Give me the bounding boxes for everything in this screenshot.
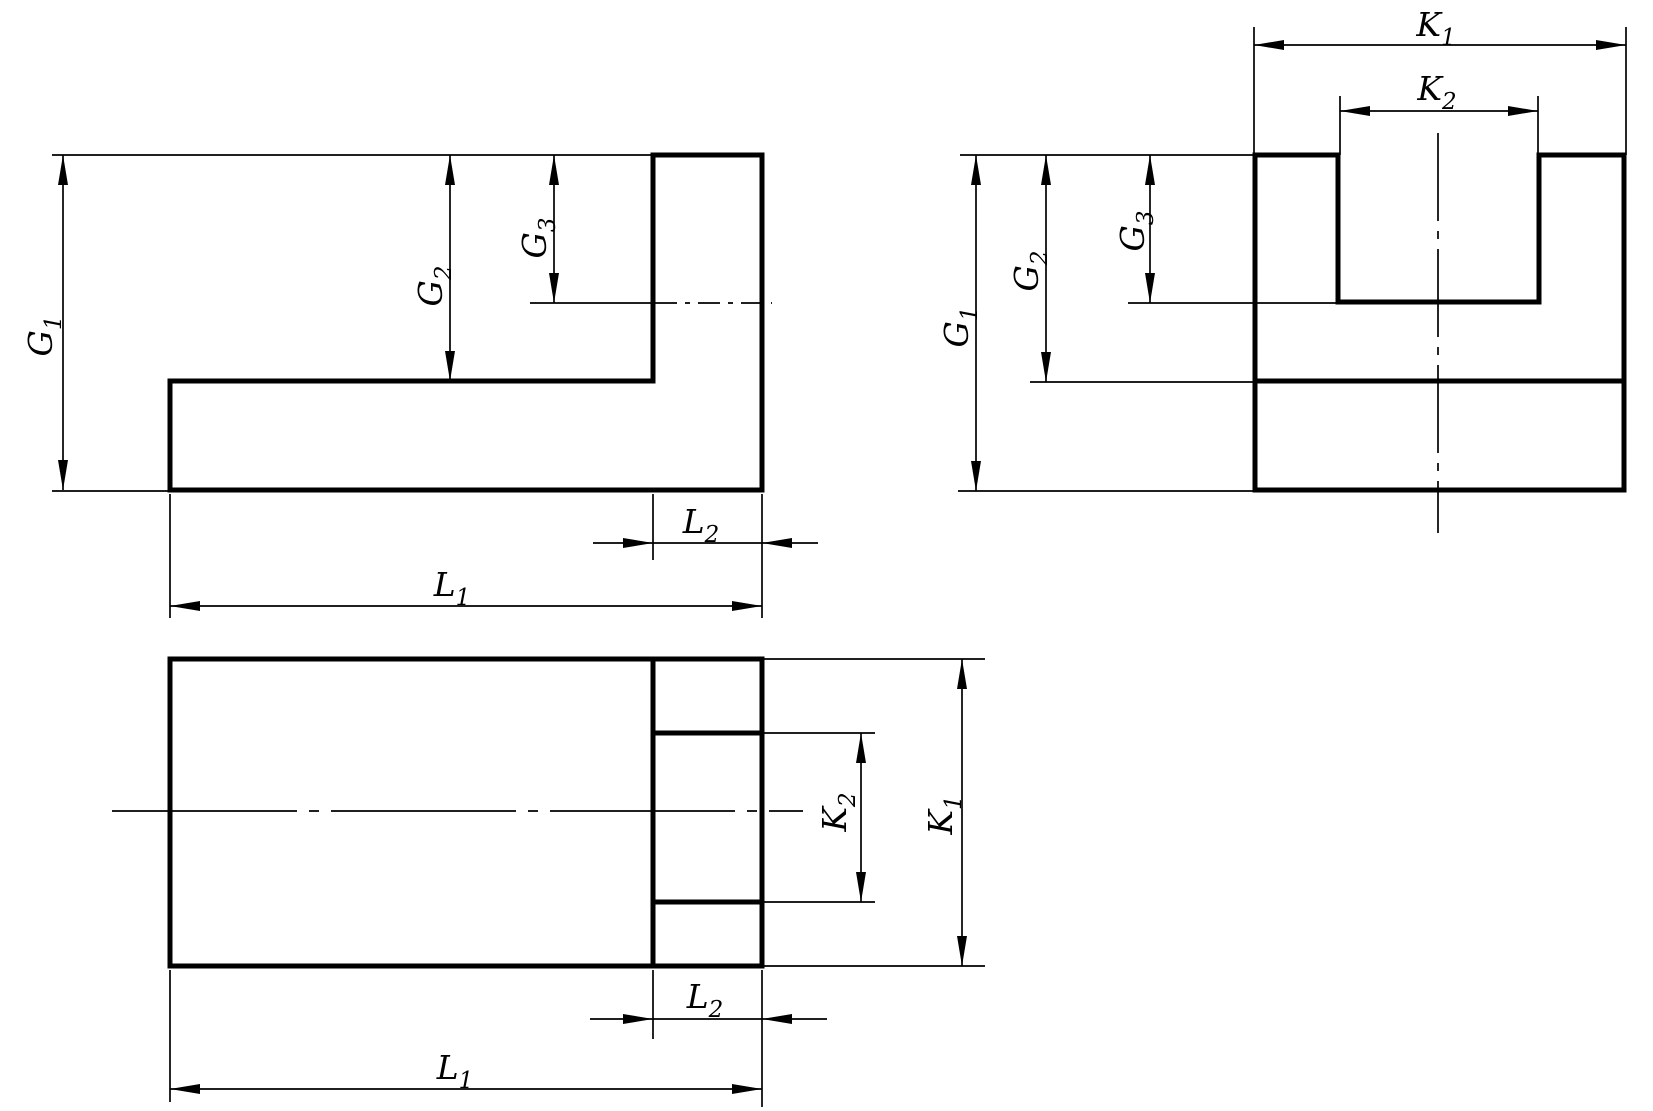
- dim-label-l2: L2: [682, 502, 720, 548]
- front-dim-g3: G3: [1113, 155, 1159, 303]
- arrowhead-down: [445, 351, 455, 381]
- engineering-drawing: G1 G2 G3 L2 L1: [0, 0, 1653, 1111]
- arrowhead-down: [549, 273, 559, 303]
- dim-label-g1: G1: [21, 315, 67, 356]
- front-view: K1 K2 G1 G2 G3: [937, 5, 1626, 533]
- arrowhead-down: [856, 872, 866, 902]
- arrowhead-down: [1145, 273, 1155, 303]
- dim-label-g3: G3: [1113, 210, 1159, 251]
- arrowhead-up: [957, 659, 967, 689]
- plan-dim-l2: L2: [590, 977, 827, 1024]
- front-dim-k1: K1: [1254, 5, 1626, 51]
- arrowhead-left: [762, 538, 792, 548]
- front-dim-g2: G2: [1007, 155, 1053, 382]
- arrowhead-up: [1145, 155, 1155, 185]
- arrowhead-down: [957, 936, 967, 966]
- arrowhead-up: [1041, 155, 1051, 185]
- plan-view: K2 K1 L2 L1: [112, 659, 985, 1107]
- arrowhead-up: [445, 155, 455, 185]
- arrowhead-up: [971, 155, 981, 185]
- drawing-svg: G1 G2 G3 L2 L1: [0, 0, 1653, 1111]
- front-dim-k2: K2: [1340, 69, 1538, 116]
- plan-view-outline: [170, 659, 762, 966]
- plan-dim-l1: L1: [170, 1048, 762, 1094]
- front-dim-g1: G1: [937, 155, 983, 491]
- side-dim-g3: G3: [515, 155, 561, 303]
- dim-label-k2: K2: [815, 792, 861, 832]
- arrowhead-up: [856, 733, 866, 763]
- dim-label-k2: K2: [1416, 69, 1456, 115]
- arrowhead-right: [732, 601, 762, 611]
- dim-label-k1: K1: [921, 795, 967, 835]
- dim-label-k1: K1: [1415, 5, 1455, 51]
- arrowhead-left: [1340, 106, 1370, 116]
- arrowhead-left: [1254, 40, 1284, 50]
- arrowhead-left: [170, 601, 200, 611]
- arrowhead-right: [623, 1014, 653, 1024]
- side-dim-l1: L1: [170, 565, 762, 611]
- side-view: G1 G2 G3 L2 L1: [21, 155, 818, 618]
- plan-dim-k1: K1: [921, 659, 967, 966]
- dim-label-l1: L1: [436, 1048, 474, 1094]
- arrowhead-right: [732, 1084, 762, 1094]
- arrowhead-left: [762, 1014, 792, 1024]
- arrowhead-right: [1508, 106, 1538, 116]
- arrowhead-right: [623, 538, 653, 548]
- arrowhead-down: [1041, 352, 1051, 382]
- arrowhead-up: [58, 155, 68, 185]
- side-dim-g1: G1: [21, 155, 68, 490]
- dim-label-l2: L2: [686, 977, 724, 1023]
- side-dim-l2: L2: [593, 502, 818, 548]
- plan-dim-k2: K2: [815, 733, 866, 902]
- arrowhead-down: [58, 460, 68, 490]
- arrowhead-down: [971, 461, 981, 491]
- dim-label-l1: L1: [433, 565, 471, 611]
- front-view-outline: [1255, 155, 1624, 490]
- arrowhead-up: [549, 155, 559, 185]
- arrowhead-left: [170, 1084, 200, 1094]
- side-dim-g2: G2: [411, 155, 457, 381]
- side-view-outline: [170, 155, 762, 490]
- arrowhead-right: [1596, 40, 1626, 50]
